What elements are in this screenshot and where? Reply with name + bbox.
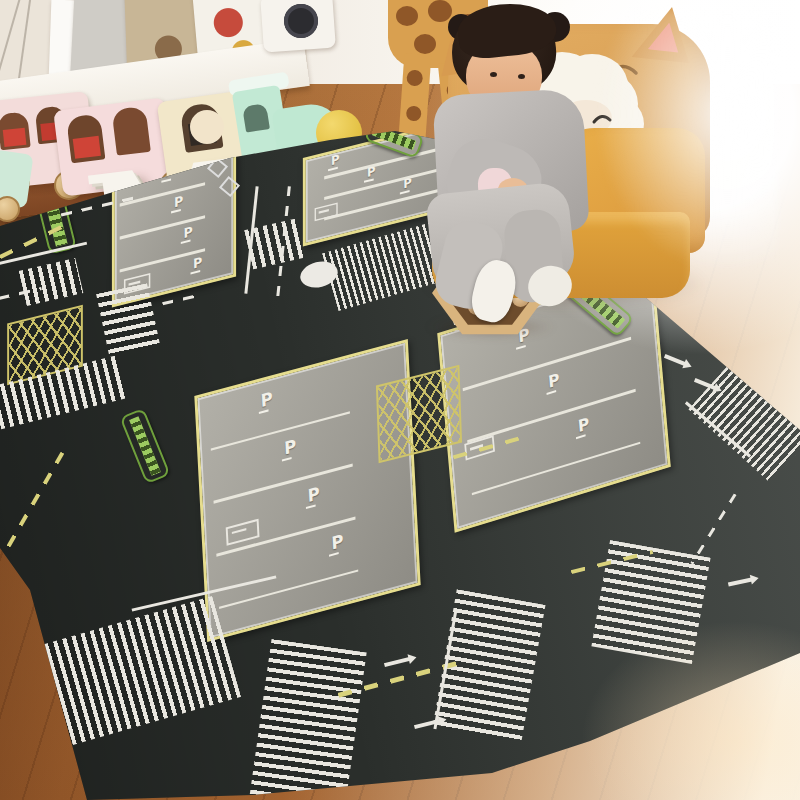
entrance-marking [225, 518, 259, 545]
stall-line [211, 411, 350, 451]
giraffe-spot [414, 34, 436, 54]
parking-symbol: P [403, 175, 412, 192]
parking-symbol: P [577, 413, 590, 436]
parking-symbol: P [307, 482, 320, 506]
toy-lens-circle [284, 4, 318, 38]
parking-symbol: P [260, 388, 273, 412]
parking-symbol: P [183, 224, 192, 242]
child-eye [518, 74, 525, 79]
giraffe-spot [396, 6, 418, 26]
giraffe-spot [406, 69, 423, 86]
giraffe-spot [428, 0, 452, 22]
child-eye [490, 72, 497, 77]
parking-symbol: P [174, 193, 183, 211]
parking-symbol: P [193, 254, 202, 272]
parking-symbol: P [367, 163, 376, 180]
parking-symbol: P [331, 152, 340, 169]
window-light-wash [598, 10, 778, 270]
stall-line [219, 569, 358, 609]
parking-symbol: P [547, 369, 560, 392]
red-block [3, 128, 27, 147]
stall-line [213, 464, 352, 504]
giraffe-spot [406, 106, 422, 122]
parking-symbol: P [331, 530, 344, 554]
parking-symbol: P [284, 435, 297, 459]
floor-light-glow [580, 620, 800, 800]
